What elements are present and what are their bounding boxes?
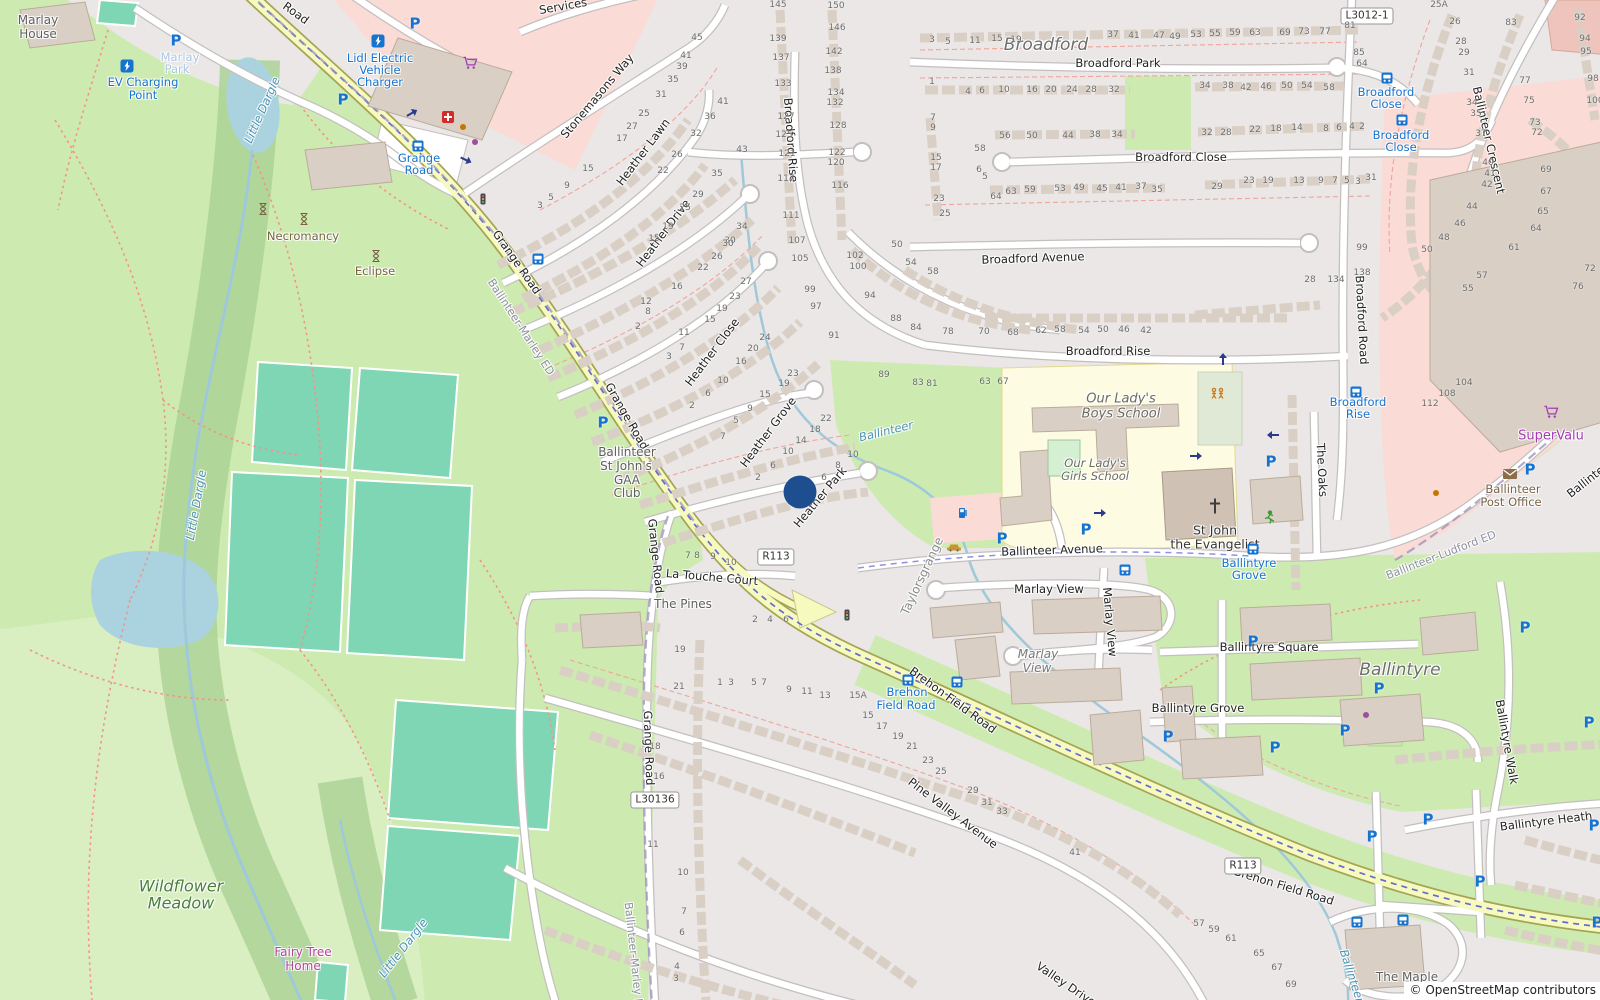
house-number: 40: [1482, 158, 1493, 168]
house-number: 15: [862, 711, 873, 721]
arrow-icon: [405, 107, 419, 120]
house-number: 29: [692, 190, 703, 200]
label-broadford-rise: Broadford Rise: [781, 97, 801, 182]
label-club: Club: [614, 486, 641, 500]
label-charger: Charger: [357, 75, 403, 89]
house-number: 88: [890, 314, 901, 324]
house-number: 97: [810, 302, 821, 312]
house-number: 146: [828, 23, 845, 33]
house-number: 6: [821, 473, 827, 483]
house-number: 64: [1356, 59, 1367, 69]
house-number: 6: [783, 615, 789, 625]
house-number: 16: [653, 772, 664, 782]
house-number: 54: [1078, 326, 1089, 336]
label-ballinteer-marley-ed: Ballinteer-Marley ED: [485, 276, 557, 377]
label-grange-road: Grange Road: [645, 518, 667, 594]
house-number: 19: [1010, 35, 1021, 45]
p-icon: P: [1367, 830, 1378, 845]
label-meadow: Meadow: [148, 894, 214, 913]
house-number: 35: [711, 169, 722, 179]
dot-orange-icon: [460, 124, 466, 130]
house-number: 28: [1455, 37, 1466, 47]
house-number: 73: [1529, 118, 1540, 128]
house-number: 20: [1045, 85, 1056, 95]
map-canvas[interactable]: RoadGrange RoadGrange RoadGrange RoadGra…: [0, 0, 1600, 1000]
house-number: 150: [827, 1, 844, 11]
house-number: 35: [1151, 185, 1162, 195]
label-ballintyre-square: Ballintyre Square: [1220, 640, 1319, 654]
house-number: 121: [778, 149, 795, 159]
p-icon: P: [1520, 621, 1531, 636]
label-broadford-road: Broadford Road: [1353, 275, 1372, 365]
p-icon: P: [1592, 916, 1600, 931]
house-number: 138: [1353, 268, 1370, 278]
house-number: 43: [736, 145, 747, 155]
arrow-icon: [459, 154, 473, 166]
house-number: 16: [671, 282, 682, 292]
label-the-pines: The Pines: [654, 597, 712, 611]
house-number: 8: [645, 307, 651, 317]
p-icon: P: [997, 532, 1008, 547]
house-number: 48: [1438, 233, 1449, 243]
label-post-office: Post Office: [1480, 495, 1541, 509]
label-services: Services: [538, 0, 588, 17]
label-ballinteer: Ballinteer: [1485, 482, 1540, 496]
bus-icon: [1248, 544, 1259, 555]
house-number: 25: [638, 109, 649, 119]
house-number: 25: [935, 767, 946, 777]
house-number: 34: [736, 222, 747, 232]
house-number: 2: [635, 322, 641, 332]
house-number: 20: [747, 344, 758, 354]
house-number: 81: [1344, 21, 1355, 31]
house-number: 26: [711, 252, 722, 262]
house-number: 9: [710, 552, 716, 562]
label-fairy-tree: Fairy Tree: [274, 945, 331, 959]
p-icon: P: [598, 416, 609, 431]
house-number: 37: [1107, 30, 1118, 40]
house-number: 7: [679, 343, 685, 353]
label-ballinteer: Ballinteer: [858, 418, 915, 445]
house-number: 3: [1355, 177, 1361, 187]
house-number: 31: [1463, 68, 1474, 78]
artwork-icon: [259, 203, 268, 216]
house-number: 99: [1356, 243, 1367, 253]
house-number: 138: [824, 66, 841, 76]
house-number: 145: [769, 0, 786, 10]
house-number: 72: [1584, 264, 1595, 274]
house-number: 15A: [849, 691, 867, 701]
house-number: 15: [759, 390, 770, 400]
house-number: 25: [939, 209, 950, 219]
house-number: 17: [616, 134, 627, 144]
bus-icon: [1382, 73, 1393, 84]
house-number: 58: [1323, 83, 1334, 93]
house-number: 122: [828, 148, 845, 158]
house-number: 6: [979, 86, 985, 96]
p-icon: P: [1081, 523, 1092, 538]
label-valley-drive: Valley Drive: [1034, 959, 1099, 1000]
bus-icon: [413, 141, 424, 152]
house-number: 4: [767, 615, 773, 625]
house-number: 37: [1135, 182, 1146, 192]
house-number: 25: [679, 203, 690, 213]
house-number: 9: [786, 685, 792, 695]
house-number: 112: [1421, 399, 1438, 409]
house-number: 142: [825, 47, 842, 57]
label-our-lady-s: Our Lady's: [1064, 456, 1125, 470]
house-number: 76: [1572, 282, 1583, 292]
house-number: 30: [722, 239, 733, 249]
house-number: 31: [1365, 173, 1376, 183]
p-icon: P: [338, 93, 349, 108]
house-number: 17: [930, 163, 941, 173]
bus-icon: [533, 254, 544, 265]
label-girls-school: Girls School: [1061, 469, 1129, 483]
house-number: 134: [1327, 275, 1344, 285]
house-number: 23: [922, 756, 933, 766]
arrow-icon: [1094, 509, 1106, 517]
label-ballinteer-marley-ed: Ballinteer-Marley ED: [622, 902, 647, 1000]
house-number: 11: [801, 687, 812, 697]
house-number: 21: [906, 742, 917, 752]
label-road: Road: [280, 0, 312, 27]
house-number: 100: [1586, 96, 1600, 106]
house-number: 92: [1574, 13, 1585, 23]
dot-purple-icon: [1363, 712, 1369, 718]
house-number: 22: [820, 414, 831, 424]
house-number: 6: [976, 165, 982, 175]
house-number: 41: [680, 51, 691, 61]
label-heather-close: Heather Close: [682, 315, 742, 388]
house-number: 10: [782, 447, 793, 457]
house-number: 42: [1240, 83, 1251, 93]
location-marker[interactable]: [784, 476, 817, 509]
house-number: 4: [1349, 122, 1355, 132]
house-number: 34: [1199, 81, 1210, 91]
house-number: 29: [1211, 182, 1222, 192]
house-number: 28: [1220, 128, 1231, 138]
house-number: 65: [1537, 207, 1548, 217]
label-grange-road: Grange Road: [602, 380, 652, 452]
p-icon: P: [1584, 716, 1595, 731]
house-number: 42: [1140, 326, 1151, 336]
house-number: 41: [1484, 169, 1495, 179]
attribution-text[interactable]: © OpenStreetMap contributors: [1410, 983, 1596, 997]
house-number: 17: [876, 722, 887, 732]
house-number: 62: [1035, 326, 1046, 336]
house-number: 7: [685, 551, 691, 561]
house-number: 8: [694, 551, 700, 561]
house-number: 46: [1454, 219, 1465, 229]
house-number: 69: [1279, 28, 1290, 38]
p-icon: P: [1423, 813, 1434, 828]
house-number: 19: [662, 222, 673, 232]
house-number: 13: [1293, 176, 1304, 186]
label-eclipse: Eclipse: [355, 264, 395, 278]
house-number: 39: [676, 62, 687, 72]
label-l30136: L30136: [630, 792, 679, 809]
house-number: 8: [835, 461, 841, 471]
house-number: 1: [717, 678, 723, 688]
label-st-john-s: St John's: [600, 459, 652, 473]
house-number: 125: [775, 130, 792, 140]
label-ballinteer-ludford-ed: Ballinteer-Ludford ED: [1384, 528, 1498, 582]
house-number: 63: [979, 377, 990, 387]
house-number: 67: [997, 377, 1008, 387]
house-number: 23: [933, 194, 944, 204]
house-number: 50: [1281, 81, 1292, 91]
house-number: 50: [1421, 245, 1432, 255]
house-number: 67: [1271, 963, 1282, 973]
house-number: 2: [1359, 122, 1365, 132]
label-broadford-avenue: Broadford Avenue: [981, 249, 1084, 267]
house-number: 111: [782, 211, 799, 221]
artwork-icon: [300, 213, 309, 226]
house-number: 45: [1096, 184, 1107, 194]
p-icon: P: [1340, 724, 1351, 739]
house-number: 120: [827, 158, 844, 168]
house-number: 107: [788, 236, 805, 246]
house-number: 10: [725, 558, 736, 568]
house-number: 84: [910, 323, 921, 333]
house-number: 70: [978, 327, 989, 337]
label-marlay-view: Marlay View: [1100, 587, 1120, 658]
house-number: 94: [1579, 34, 1590, 44]
label-broadford-close: Broadford Close: [1135, 150, 1227, 164]
label-heather-lawn: Heather Lawn: [613, 116, 672, 188]
house-number: 27: [740, 277, 751, 287]
p-icon: P: [171, 34, 182, 49]
label-taylorsgrange: Taylorsgrange: [898, 535, 946, 617]
house-number: 18: [809, 425, 820, 435]
label-r113: R113: [757, 549, 794, 566]
house-number: 5: [1344, 176, 1350, 186]
house-number: 55: [1462, 284, 1473, 294]
label-park: Park: [165, 62, 190, 76]
house-number: 32: [690, 129, 701, 139]
house-number: 7: [761, 678, 767, 688]
house-number: 95: [1580, 47, 1591, 57]
house-number: 25A: [1430, 0, 1448, 10]
label-home: Home: [285, 959, 320, 973]
house-number: 7: [720, 432, 726, 442]
house-number: 32: [1201, 128, 1212, 138]
house-number: 49: [1169, 32, 1180, 42]
house-number: 67: [1540, 187, 1551, 197]
house-number: 1: [929, 77, 935, 87]
house-number: 9: [564, 181, 570, 191]
runner-icon: [1263, 511, 1275, 524]
house-number: 16: [1026, 85, 1037, 95]
label-r113: R113: [1224, 858, 1261, 875]
label-ballinteer: Ballinteer: [598, 445, 656, 459]
house-number: 28: [1085, 85, 1096, 95]
label-marlay: Marlay: [1018, 647, 1058, 661]
p-icon: P: [1475, 875, 1486, 890]
bus-icon: [1351, 387, 1362, 398]
house-number: 14: [795, 436, 806, 446]
house-number: 14: [1291, 123, 1302, 133]
signal-icon: [845, 610, 850, 621]
taxi-icon: [947, 543, 961, 552]
label-little-dargle: Little Dargle: [376, 916, 431, 980]
label-stonemasons-way: Stonemasons Way: [558, 51, 637, 141]
house-number: 132: [826, 98, 843, 108]
house-number: 57: [1193, 919, 1204, 929]
house-number: 27: [626, 122, 637, 132]
house-number: 5: [733, 416, 739, 426]
label-ballinteer: Ballinteer: [1337, 948, 1367, 1000]
bus-icon: [903, 675, 914, 686]
house-number: 75: [1523, 96, 1534, 106]
p-icon: P: [1163, 730, 1174, 745]
arrow-icon: [1190, 452, 1202, 460]
p-icon: P: [410, 17, 421, 32]
house-number: 9: [747, 404, 753, 414]
house-number: 12: [640, 297, 651, 307]
house-number: 58: [1054, 325, 1065, 335]
label-the-oaks: The Oaks: [1314, 443, 1331, 497]
arrow-icon: [1219, 353, 1227, 365]
house-number: 72: [1531, 128, 1542, 138]
house-number: 37: [1475, 129, 1486, 139]
house-number: 19: [674, 645, 685, 655]
house-number: 29: [1458, 48, 1469, 58]
house-number: 50: [891, 240, 902, 250]
house-number: 77: [1319, 27, 1330, 37]
mail-icon: [1503, 469, 1517, 479]
house-number: 28: [1304, 275, 1315, 285]
house-number: 105: [791, 254, 808, 264]
house-number: 63: [1005, 187, 1016, 197]
house-number: 4: [965, 87, 971, 97]
playground-icon: [1210, 388, 1226, 399]
bus-icon: [1352, 917, 1363, 928]
house-number: 127: [777, 112, 794, 122]
house-number: 26: [1449, 17, 1460, 27]
label-our-lady-s: Our Lady's: [1086, 392, 1155, 407]
cart-icon: [463, 57, 478, 70]
label-the-evangelist: the Evangelist: [1170, 537, 1259, 552]
signal-icon: [481, 194, 486, 205]
arrow-icon: [1267, 431, 1279, 439]
house-number: 32: [1108, 85, 1119, 95]
dot-purple-icon: [472, 139, 478, 145]
house-number: 7: [681, 907, 687, 917]
label-brehon: Brehon: [886, 685, 927, 699]
house-number: 54: [1301, 81, 1312, 91]
p-icon: P: [1266, 455, 1277, 470]
house-number: 9: [930, 123, 936, 133]
house-number: 41: [1128, 31, 1139, 41]
label-little-dargle: Little Dargle: [241, 75, 283, 145]
house-number: 137: [772, 53, 789, 63]
p-icon: P: [1589, 819, 1600, 834]
label-grove: Grove: [1232, 568, 1266, 582]
house-number: 69: [1285, 980, 1296, 990]
house-number: 6: [705, 389, 711, 399]
label-broadford-rise: Broadford Rise: [1066, 344, 1151, 358]
house-number: 117: [777, 174, 794, 184]
house-number: 11: [647, 840, 658, 850]
house-number: 18: [649, 742, 660, 752]
house-number: 26: [671, 150, 682, 160]
label-ballintyre-grove: Ballintyre Grove: [1152, 701, 1245, 715]
house-number: 2: [689, 401, 695, 411]
house-number: 15: [704, 315, 715, 325]
label-ev-charging: EV Charging: [108, 75, 179, 89]
house-number: 128: [829, 121, 846, 131]
house-number: 23: [787, 369, 798, 379]
house-number: 4: [674, 962, 680, 972]
dot-orange-icon: [1433, 490, 1439, 496]
house-number: 99: [804, 285, 815, 295]
house-number: 44: [1062, 131, 1073, 141]
label-road: Road: [405, 163, 434, 177]
house-number: 77: [1519, 76, 1530, 86]
house-number: 59: [1024, 185, 1035, 195]
house-number: 83: [1505, 18, 1516, 28]
house-number: 85: [1353, 48, 1364, 58]
label-broadford-park: Broadford Park: [1075, 56, 1160, 70]
house-number: 100: [849, 262, 866, 272]
label-house: House: [19, 27, 57, 41]
house-number: 11: [678, 328, 689, 338]
house-number: 104: [1455, 378, 1472, 388]
house-number: 23: [1243, 176, 1254, 186]
label-boys-school: Boys School: [1082, 407, 1161, 422]
house-number: 36: [704, 112, 715, 122]
house-number: 3: [728, 678, 734, 688]
house-number: 10: [717, 376, 728, 386]
house-number: 24: [1066, 85, 1077, 95]
house-number: 139: [769, 34, 786, 44]
label-marlay: Marlay: [18, 13, 58, 27]
house-number: 33: [996, 807, 1007, 817]
house-number: 5: [945, 37, 951, 47]
label-st-john: St John: [1193, 523, 1237, 538]
house-number: 59: [1208, 925, 1219, 935]
house-number: 61: [1225, 934, 1236, 944]
house-number: 69: [1540, 165, 1551, 175]
label-pine-valley-avenue: Pine Valley Avenue: [905, 775, 1000, 852]
house-number: 58: [927, 267, 938, 277]
house-number: 35: [667, 75, 678, 85]
p-icon: P: [1374, 682, 1385, 697]
house-number: 81: [926, 379, 937, 389]
house-number: 89: [878, 370, 889, 380]
house-number: 3: [673, 974, 679, 984]
house-number: 47: [1153, 31, 1164, 41]
fuel-icon: [958, 507, 968, 519]
house-number: 116: [831, 181, 848, 191]
attribution[interactable]: © OpenStreetMap contributors: [1404, 982, 1600, 1000]
label-ballintyre: Ballintyre: [1359, 660, 1440, 680]
house-number: 15: [991, 34, 1002, 44]
house-number: 61: [1508, 243, 1519, 253]
house-number: 49: [1073, 183, 1084, 193]
house-number: 19: [892, 732, 903, 742]
label-la-touche-court: La Touche Court: [665, 566, 758, 588]
label-ballinteer-avenue: Ballinteer Avenue: [1001, 541, 1103, 559]
house-number: 23: [729, 292, 740, 302]
house-number: 15: [582, 164, 593, 174]
house-number: 35: [1470, 109, 1481, 119]
house-number: 24: [759, 333, 770, 343]
house-number: 134: [827, 88, 844, 98]
house-number: 94: [864, 291, 875, 301]
